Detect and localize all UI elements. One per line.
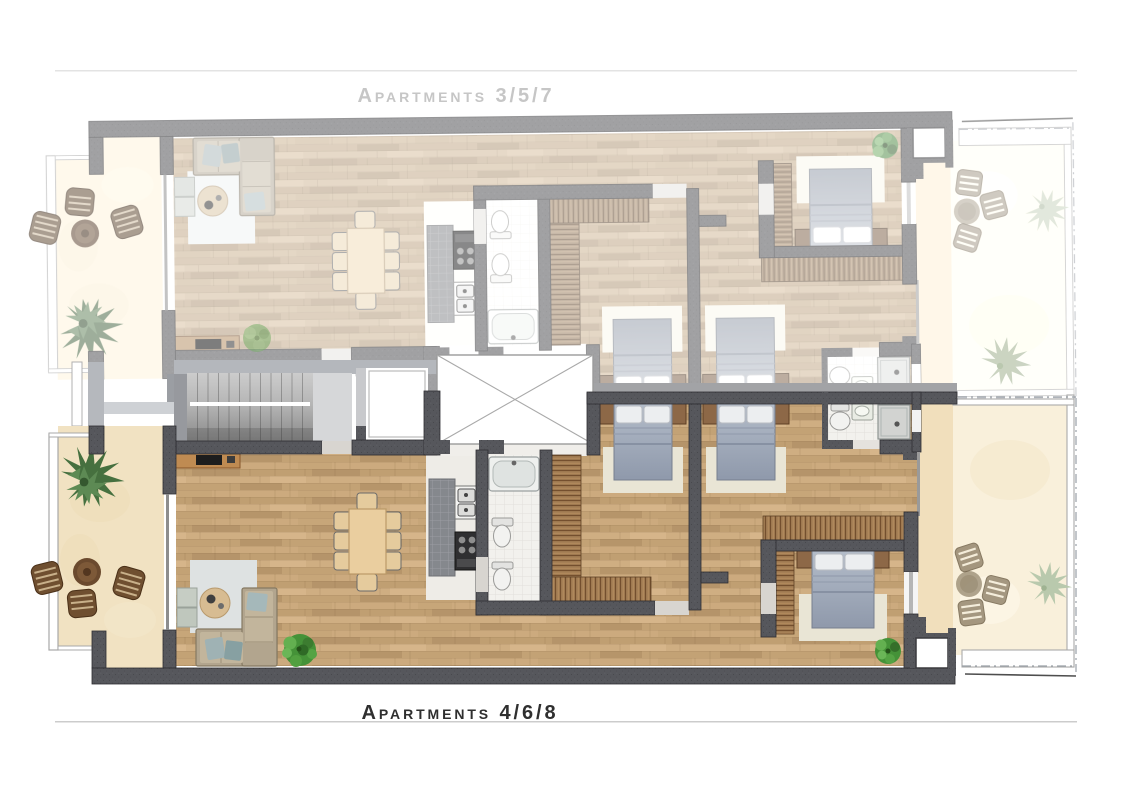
- svg-text:Apartments 3/5/7: Apartments 3/5/7: [358, 85, 555, 107]
- svg-text:Apartments 4/6/8: Apartments 4/6/8: [362, 702, 559, 724]
